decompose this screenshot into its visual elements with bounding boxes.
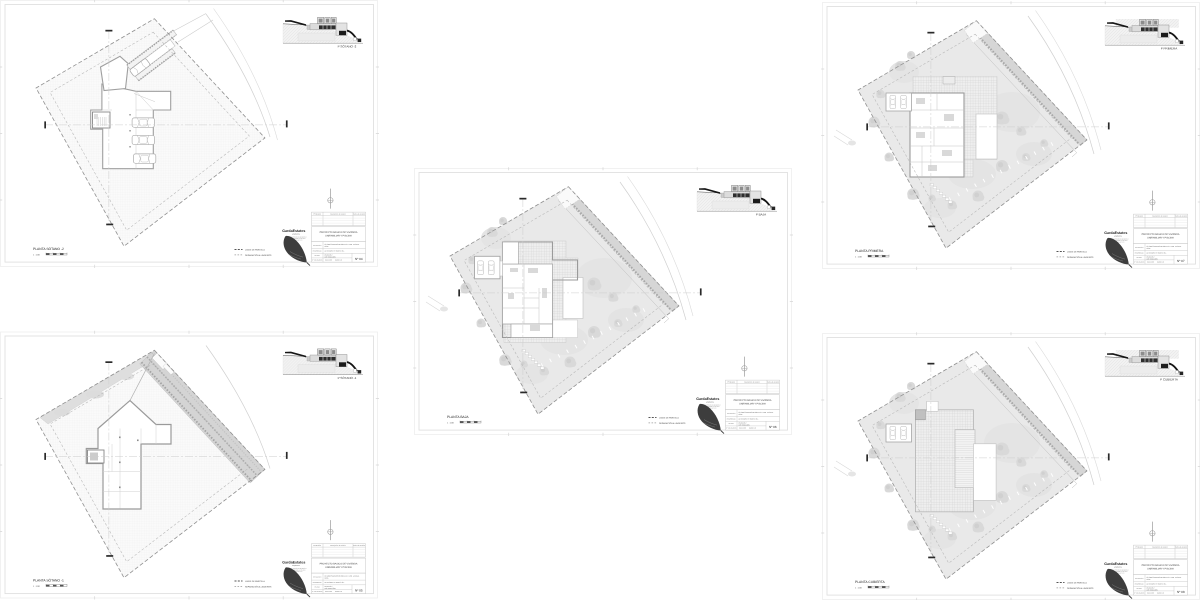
svg-text:P PRIMERA: P PRIMERA [1161, 47, 1177, 51]
svg-text:PLANTA PRIMERA: PLANTA PRIMERA [855, 249, 884, 253]
svg-text:P SÓTANO -2: P SÓTANO -2 [338, 45, 357, 49]
svg-text:Nº 07: Nº 07 [1177, 259, 1185, 263]
svg-text:P SÓTANO -1: P SÓTANO -1 [338, 376, 357, 380]
svg-text:1 : 100: 1 : 100 [855, 587, 862, 590]
svg-text:P BAJA: P BAJA [756, 213, 766, 217]
svg-text:1 : 100: 1 : 100 [855, 256, 862, 259]
svg-text:PLANTA SÓTANO -1: PLANTA SÓTANO -1 [33, 579, 64, 583]
svg-text:1 : 100: 1 : 100 [447, 422, 454, 425]
svg-text:Nº 08: Nº 08 [1177, 590, 1185, 594]
svg-text:Nº 06: Nº 06 [769, 425, 777, 429]
svg-text:1 : 100: 1 : 100 [33, 585, 40, 588]
svg-text:1 : 100: 1 : 100 [33, 254, 40, 257]
svg-text:Nº 04: Nº 04 [355, 257, 363, 261]
svg-text:PLANTA BAJA: PLANTA BAJA [447, 415, 469, 419]
svg-text:PLANTA SÓTANO -2: PLANTA SÓTANO -2 [33, 247, 64, 251]
svg-text:P CUBIERTA: P CUBIERTA [1160, 378, 1178, 382]
svg-text:Nº 05: Nº 05 [355, 588, 363, 592]
svg-text:PLANTA CUBIERTA: PLANTA CUBIERTA [855, 580, 885, 584]
